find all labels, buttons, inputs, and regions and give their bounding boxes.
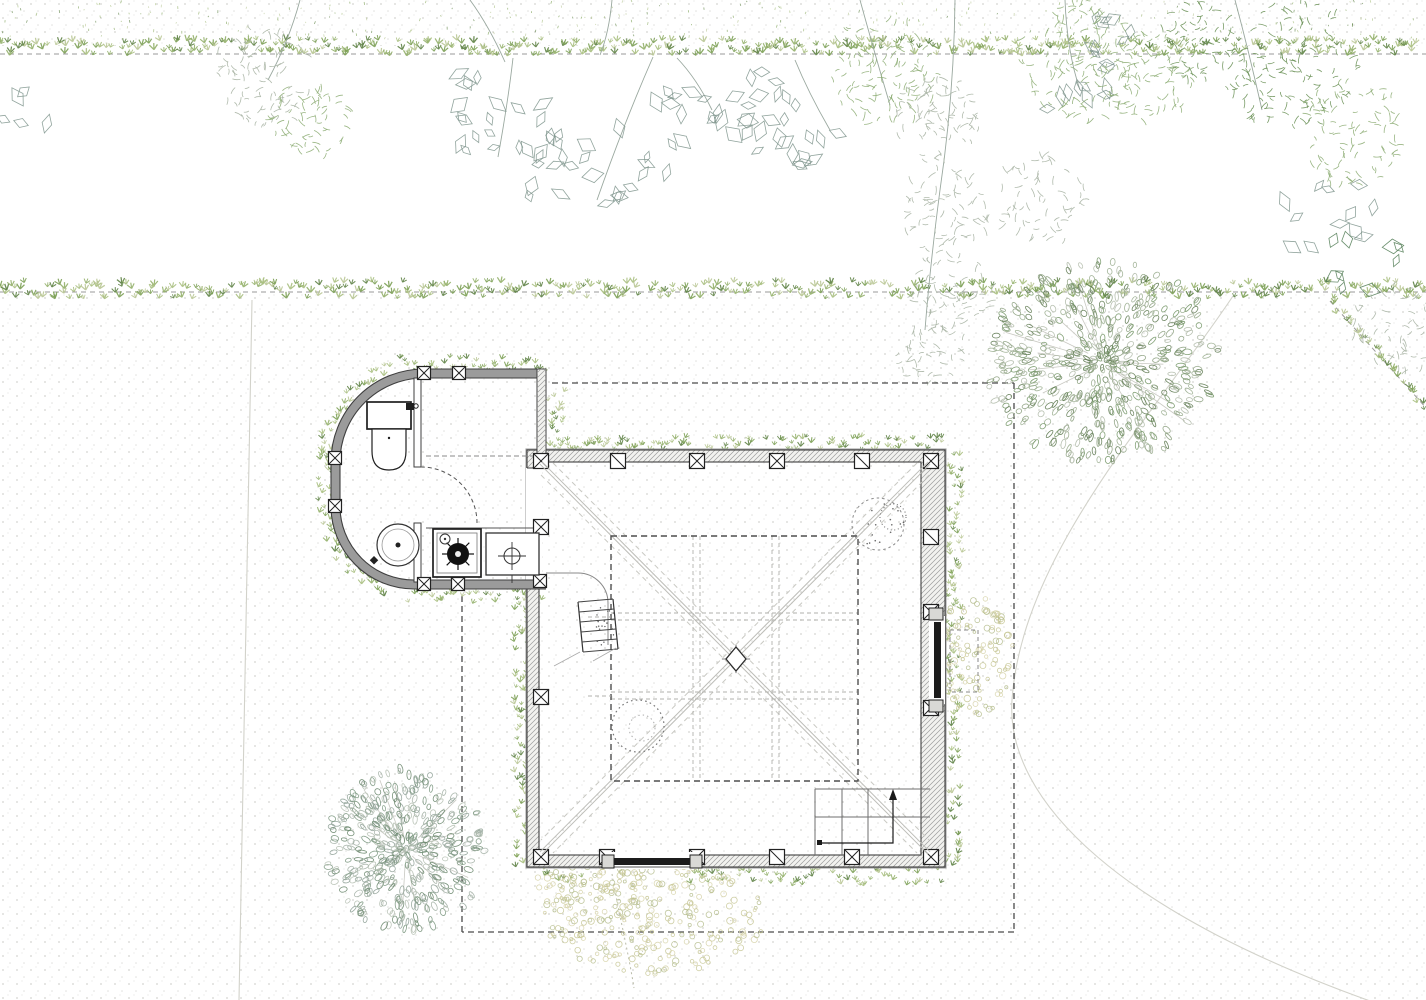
south-sliding-door	[602, 852, 702, 869]
kitchen-stove	[433, 529, 481, 577]
site-plan-drawing	[0, 0, 1426, 1000]
ground-dot-texture	[0, 0, 1426, 1000]
site-plan	[0, 0, 1426, 1000]
kitchen-sink	[486, 533, 539, 583]
